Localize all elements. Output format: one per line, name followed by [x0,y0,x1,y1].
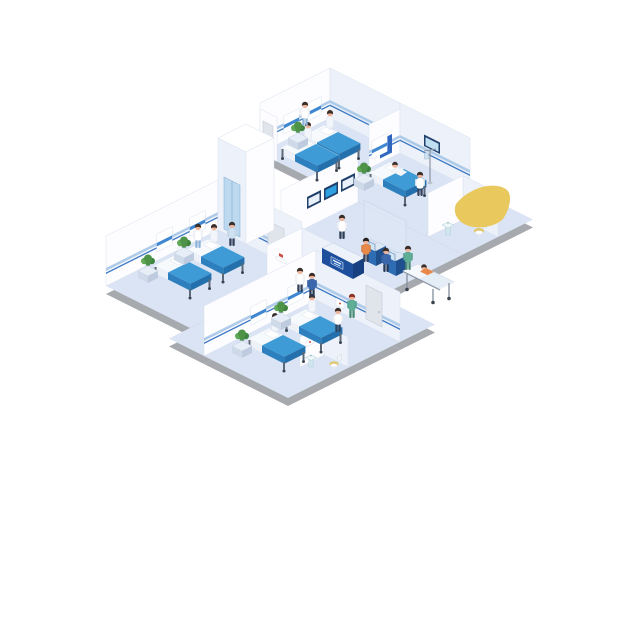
illustration-canvas [0,0,640,640]
sitting-patient [210,224,217,242]
iv-bag [425,153,429,159]
elevator [218,124,274,244]
hospital-isometric-illustration: Isometric hospital ward floor illustrati… [0,0,640,640]
sitting-patient [326,110,333,128]
sitting-patient [308,294,315,312]
